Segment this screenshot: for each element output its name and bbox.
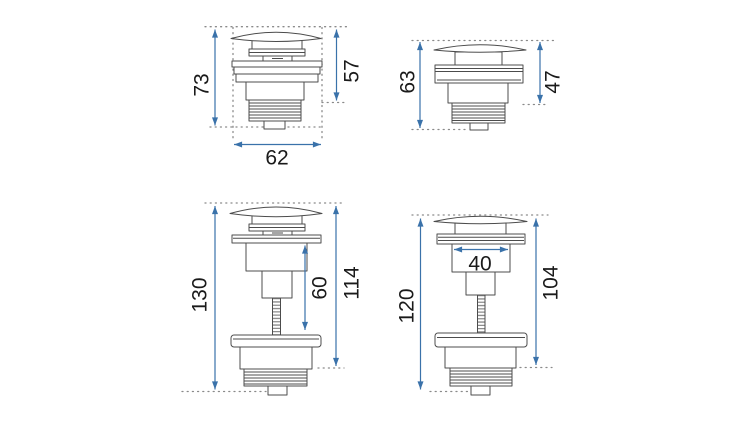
view-top-left <box>205 27 347 145</box>
dimension-label-total-height-tr: 63 <box>398 70 419 93</box>
flat-cap <box>434 216 527 224</box>
dimension-label-total-height-tl: 73 <box>192 73 213 96</box>
cap-stem <box>455 223 506 234</box>
plug-body <box>240 347 312 369</box>
dimension-label-upper-height-tr: 47 <box>543 70 564 93</box>
dimension-label-upper-height-tl: 57 <box>342 59 363 82</box>
upper-body <box>246 243 307 271</box>
flange-mid <box>234 67 320 74</box>
plug-body <box>246 82 304 100</box>
dome-cap <box>231 32 321 41</box>
bottom-tab <box>470 123 488 130</box>
dimension-label-total-height-bl: 130 <box>190 277 211 312</box>
flange-lower <box>236 74 318 82</box>
top-flange <box>437 234 525 244</box>
plug-body <box>445 347 516 368</box>
dimension-label-cap-width-br: 40 <box>468 254 491 275</box>
dimension-label-body-height-bl: 114 <box>342 266 363 299</box>
dimension-label-stem-section-bl: 60 <box>310 276 331 299</box>
dome-cap <box>230 207 322 217</box>
plug-body <box>448 83 508 103</box>
flange-top <box>232 61 322 67</box>
threaded-rod <box>273 298 281 335</box>
lower-flange <box>231 335 321 347</box>
plug-outline <box>434 216 527 395</box>
dimension-label-body-height-br: 104 <box>541 265 562 300</box>
view-bottom-right <box>412 215 552 395</box>
plug-outline <box>434 45 526 130</box>
bottom-tab <box>471 386 490 395</box>
plug-outline <box>231 32 322 129</box>
drain-plug-drawings <box>0 0 756 422</box>
dimension-label-width-tl: 62 <box>265 148 288 169</box>
threaded-rod <box>478 295 486 333</box>
upper-narrow-block <box>262 271 292 298</box>
dimension-label-total-height-br: 120 <box>397 288 418 323</box>
view-top-right <box>412 41 556 131</box>
technical-drawing-canvas: 73 57 62 63 47 130 60 114 120 40 104 <box>0 0 756 422</box>
cap-stem <box>455 52 502 65</box>
top-flange <box>232 235 321 243</box>
plug-outline <box>230 207 322 395</box>
lower-flange <box>435 333 527 347</box>
flat-cap <box>434 45 526 53</box>
bottom-tab <box>268 386 287 395</box>
bottom-tab <box>264 121 285 129</box>
